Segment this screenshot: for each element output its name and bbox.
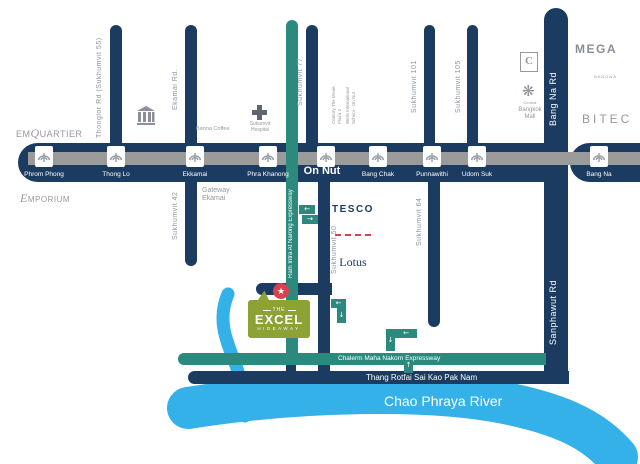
oneway-left-marker: ←	[299, 205, 315, 214]
thonglor-road	[110, 25, 122, 160]
excel-hideaway-logo: THE EXCEL HIDEAWAY	[248, 300, 310, 338]
central-c-icon: C	[520, 52, 538, 72]
tesco-lotus-logo: TESCO Lotus	[332, 186, 374, 288]
ekamai-road-label: Ekamai Rd.	[172, 60, 179, 110]
oneway-right-marker: →	[302, 215, 318, 224]
sukhumvit77-road-label: Sukhumvit 77	[297, 52, 304, 106]
up-arrow-icon: ↑	[406, 361, 412, 369]
bts-station-icon	[186, 146, 204, 167]
station-label-bang-na: Bang Na	[569, 171, 629, 178]
emquartier-q: Q	[31, 126, 40, 140]
station-label-phra-khanong: Phra Khanong	[238, 171, 298, 178]
location-map: Chao Phraya River ← → ← ↓ ← ↓ ↑	[0, 0, 640, 464]
emporium-text: MPORIUM	[28, 195, 70, 204]
hospital-cross-icon	[252, 105, 267, 120]
star-icon: ★	[277, 286, 285, 296]
bts-station-bang-chak	[369, 146, 387, 167]
emporium-logo: EMPORIUM	[20, 182, 70, 206]
emporium-e: E	[20, 191, 28, 205]
bts-station-ekkamai	[186, 146, 204, 167]
bts-station-bang-na	[590, 146, 608, 167]
station-label-udom-suk: Udom Suk	[447, 171, 507, 178]
sukhumvit64-road	[428, 178, 440, 327]
left-arrow-icon: ←	[336, 299, 342, 307]
mega-bangna-logo: MEGA BANGNA	[575, 24, 617, 97]
down-arrow-icon: ↓	[388, 336, 394, 344]
bts-station-punnawithi	[423, 146, 441, 167]
river-label: Chao Phraya River	[384, 393, 502, 409]
sukhumvit42-road	[185, 178, 197, 266]
right-arrow-icon: →	[307, 215, 313, 223]
sukhumvit101-road-label: Sukhumvit 101	[411, 53, 418, 113]
bts-station-icon	[468, 146, 486, 167]
emquartier-logo: EMQUARTIER	[16, 116, 83, 141]
bts-station-icon	[107, 146, 125, 167]
bitec-label: BITEC	[582, 112, 632, 126]
bts-station-phrom-phong	[35, 146, 53, 167]
museum-icon	[135, 104, 157, 130]
ekamai-road	[185, 25, 197, 160]
logo-line-right	[288, 310, 296, 311]
bangkok-mall-label: Bangkok Mall	[512, 107, 548, 121]
down-arrow-icon: ↓	[339, 311, 345, 319]
lotus-text: Lotus	[332, 255, 374, 270]
banna-coffee-label: Banna Coffee	[196, 126, 230, 132]
left-arrow-icon: ←	[403, 329, 409, 337]
bts-station-icon	[423, 146, 441, 167]
station-label-phrom-phong: Phrom Phong	[14, 171, 74, 178]
bts-station-icon	[35, 146, 53, 167]
bts-station-on-nut	[317, 146, 335, 167]
oneway-down-marker: ↓	[337, 308, 346, 323]
bts-station-phra-khanong	[259, 146, 277, 167]
thang-rotfai-label: Thang Rotfai Sai Kao Pak Nam	[366, 373, 477, 382]
central-caption: Central	[515, 100, 545, 105]
tesco-text: TESCO	[332, 204, 374, 215]
location-star-marker: ★	[273, 283, 289, 299]
gateway-ekamai-label: Gateway Ekamai	[202, 187, 230, 203]
excel-sub-text: HIDEAWAY	[257, 326, 300, 331]
bts-station-icon	[317, 146, 335, 167]
mega-text: MEGA	[575, 42, 617, 56]
bts-station-icon	[369, 146, 387, 167]
oneway-down-marker-2: ↓	[386, 329, 395, 351]
sukhumvit105-road-label: Sukhumvit 105	[455, 53, 462, 113]
oneway-left-marker-3: ←	[395, 329, 417, 338]
hospital-label: Sukumvit Hospital	[238, 121, 282, 133]
oneway-left-marker-2: ←	[331, 299, 346, 308]
station-label-bang-chak: Bang Chak	[348, 171, 408, 178]
ram-intra-label: Ram Intra At Narong Expressway	[288, 176, 295, 278]
bts-station-icon	[590, 146, 608, 167]
sukhumvit64-road-label: Sukhumvit 64	[416, 188, 423, 246]
mega-sub-text: BANGNA	[575, 74, 617, 79]
thonglor-road-label: Thonglor Rd (Sukhumvit 55)	[96, 26, 103, 138]
sukhumvit101-road	[424, 25, 435, 160]
sukhumvit77-road	[306, 25, 318, 160]
tesco-dashes	[335, 234, 371, 236]
left-arrow-icon: ←	[304, 205, 310, 213]
chalerm-expressway-label: Chalerm Maha Nakorn Expressway	[338, 355, 440, 362]
bts-station-udom-suk	[468, 146, 486, 167]
bangna-road-label: Bang Na Rd	[550, 56, 564, 126]
excel-name-text: EXCEL	[255, 313, 303, 326]
sukhumvit50-road	[318, 178, 330, 380]
emquartier-text: EM	[16, 129, 31, 139]
station-label-thong-lo: Thong Lo	[86, 171, 146, 178]
century-movie-plaza-label: Century The Movie Plaza 2	[331, 68, 343, 124]
sukhumvit105-road	[467, 25, 478, 160]
logo-line-left	[263, 310, 271, 311]
emquartier-text2: UARTIER	[40, 129, 83, 139]
sukhumvit42-road-label: Sukhumvit 42	[172, 186, 179, 240]
bts-station-thong-lo	[107, 146, 125, 167]
wells-school-label: Wells International School - On Nut	[345, 68, 357, 124]
sanphawut-road-label: Sanphawut Rd	[550, 243, 564, 345]
station-label-ekkamai: Ekkamai	[165, 171, 225, 178]
central-flower-icon: ❋	[522, 82, 535, 100]
station-label-on-nut: On Nut	[292, 165, 352, 177]
bts-station-icon	[259, 146, 277, 167]
